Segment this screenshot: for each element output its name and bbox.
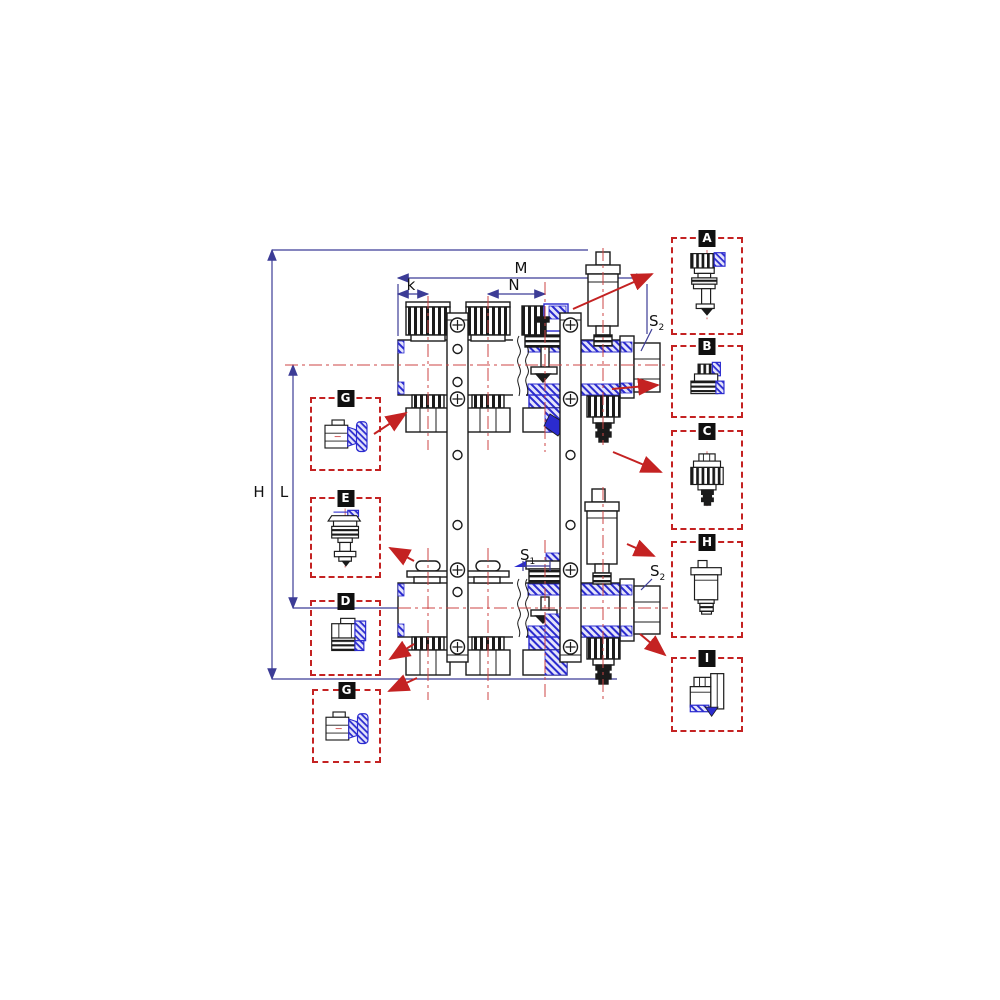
drain-valve-cap-icon [680,447,734,513]
lower-manifold [398,489,660,684]
dim-label-l: L [280,483,289,501]
reducer-adapter-icon [682,357,732,407]
lower-air-vent [585,489,619,584]
lower-end-hex-cap [634,586,660,634]
callout-label-c: C [699,423,716,440]
leader-arrow-h [627,544,654,556]
leader-arrow-i [640,634,665,655]
callout-box-g1: G [310,397,381,471]
callout-label-g1: G [337,390,354,407]
leader-arrow-e [390,548,414,561]
callout-box-d: D [310,600,381,676]
callout-box-i: I [671,657,743,732]
callout-label-e: E [337,490,354,507]
callout-box-b: B [671,345,743,418]
callout-label-h: H [699,534,716,551]
leader-arrow-c [613,452,661,472]
dim-label-s1: S1 [520,546,535,567]
callout-box-g2: G [312,689,381,763]
technical-drawing-stage: H L M k N S1 S2 S2 G E [0,0,1000,1000]
callout-label-b: B [699,338,716,355]
dim-label-s2-lower: S2 [650,562,665,583]
upper-manifold [398,252,660,442]
dim-label-n: N [508,276,519,294]
dim-label-s2-upper: S2 [649,312,664,333]
callout-box-a: A [671,237,743,335]
male-union-icon [321,611,371,665]
valve-insert-icon [680,245,734,327]
callout-box-h: H [671,541,743,638]
manifold-assembly-drawing: H L M k N S1 S2 S2 [0,0,1000,1000]
callout-label-g2: G [338,682,355,699]
upper-left-end-section [398,341,404,353]
callout-box-e: E [310,497,381,578]
callout-box-c: C [671,430,743,530]
callout-label-a: A [699,230,716,247]
dim-label-h: H [253,483,264,501]
eurocone-fitting-icon [318,408,374,460]
callout-label-i: I [699,650,716,667]
valve-core-icon [321,506,371,570]
callout-label-d: D [337,593,354,610]
air-vent-icon [682,552,732,628]
end-plug-icon [681,667,733,723]
leader-arrow-g2 [389,678,417,691]
dim-label-k: k [407,276,416,294]
dim-label-m: M [515,259,528,277]
eurocone-fitting-icon [319,700,375,752]
